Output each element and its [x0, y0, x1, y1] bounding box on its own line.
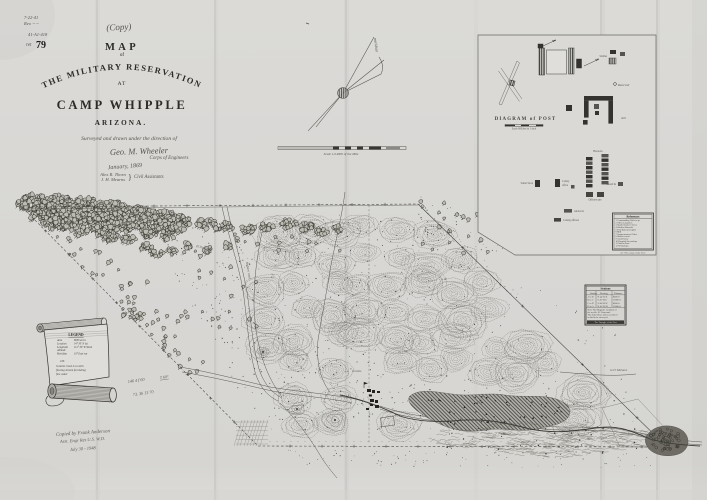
svg-text:Comdg officers: Comdg officers — [563, 219, 579, 222]
svg-text:41-A1-418: 41-A1-418 — [28, 32, 48, 37]
svg-text:Stations: Stations — [601, 287, 612, 291]
svg-text:N 45°30 W: N 45°30 W — [598, 305, 609, 308]
svg-text:References: References — [627, 216, 641, 219]
svg-text:MAP: MAP — [105, 42, 139, 53]
svg-text:Stables: Stables — [600, 55, 608, 58]
svg-text:Corps of Engineers: Corps of Engineers — [150, 156, 189, 161]
svg-text:8000 ft: 8000 ft — [613, 302, 620, 305]
svg-text:of: of — [120, 53, 125, 58]
svg-text:Reservoir: Reservoir — [617, 83, 630, 87]
svg-text:166: 166 — [60, 359, 65, 363]
svg-text:Note The Magnetic variation o: Note The Magnetic variation of — [588, 308, 617, 311]
svg-text:(Copy): (Copy) — [106, 21, 131, 32]
svg-text:Scale 1/24000 of the Mile: Scale 1/24000 of the Mile — [324, 152, 359, 156]
svg-text:}: } — [128, 173, 132, 182]
svg-text:ARIZONA.: ARIZONA. — [95, 119, 148, 127]
svg-text:12000 ft: 12000 ft — [613, 305, 621, 308]
svg-text:AT: AT — [118, 81, 127, 87]
svg-text:Civil Assistants: Civil Assistants — [134, 175, 164, 180]
svg-text:12000 ft: 12000 ft — [613, 299, 621, 302]
svg-text:Comsy: Comsy — [562, 180, 570, 183]
svg-text:for The camp at the Post: for The camp at the Post — [621, 251, 646, 254]
svg-text:CAMP WHIPPLE: CAMP WHIPPLE — [57, 98, 188, 112]
svg-text:16° East var: 16° East var — [74, 353, 88, 356]
svg-text:as laid to be surveyed.: as laid to be surveyed. — [588, 317, 609, 319]
svg-text:Station: Station — [590, 292, 598, 295]
svg-text:ret: ret — [26, 43, 32, 48]
svg-text:Officers qtrs: Officers qtrs — [589, 199, 602, 202]
svg-text:DIAGRAM of POST: DIAGRAM of POST — [495, 117, 557, 122]
svg-text:the needle 16° Eastward.: the needle 16° Eastward. — [588, 311, 611, 314]
svg-text:fine water: fine water — [56, 372, 69, 376]
svg-text:7-22-41: 7-22-41 — [24, 15, 38, 20]
svg-text:Rev. ~ ~: Rev. ~ ~ — [23, 21, 39, 26]
svg-text:J. H. Mearns: J. H. Mearns — [101, 177, 125, 182]
svg-text:Scale 600 feet to 1 inch: Scale 600 feet to 1 inch — [512, 128, 537, 131]
svg-text:12 Workshops: 12 Workshops — [616, 246, 629, 248]
svg-text:to Ft Mohave: to Ft Mohave — [610, 368, 628, 372]
svg-text:Sutler Store: Sutler Store — [521, 182, 534, 185]
svg-text:Bearing: Bearing — [600, 292, 608, 295]
svg-text:S 44°30 W: S 44°30 W — [598, 302, 609, 305]
svg-text:Barracks: Barracks — [593, 150, 602, 153]
svg-text:D to A: D to A — [588, 305, 594, 308]
svg-text:Distance: Distance — [614, 292, 622, 295]
svg-text:Adobe hs: Adobe hs — [574, 210, 584, 213]
svg-text:Granite: Granite — [352, 369, 362, 373]
svg-text:The Triangle of the Post: The Triangle of the Post — [594, 321, 617, 324]
svg-text:1 1: 1 1 — [369, 412, 374, 416]
svg-text:B to C: B to C — [588, 300, 594, 302]
svg-text:LEGEND: LEGEND — [68, 333, 84, 337]
svg-text:112° 30' W Wash: 112° 30' W Wash — [74, 346, 93, 349]
svg-text:C to D: C to D — [588, 303, 594, 305]
svg-text:S 45°30 E: S 45°30 E — [598, 299, 608, 302]
svg-text:79: 79 — [36, 40, 46, 51]
svg-text:mill: mill — [621, 116, 626, 120]
svg-text:Meridian: Meridian — [56, 353, 68, 356]
svg-text:Surveyed and drawn under the d: Surveyed and drawn under the direction o… — [81, 135, 178, 142]
svg-text:Guard hs: Guard hs — [607, 183, 616, 186]
svg-text:office: office — [562, 184, 569, 187]
svg-text:A to B: A to B — [588, 296, 594, 299]
svg-text:8000 ft: 8000 ft — [613, 296, 620, 299]
svg-text:N 44°30 E: N 44°30 E — [598, 296, 608, 299]
